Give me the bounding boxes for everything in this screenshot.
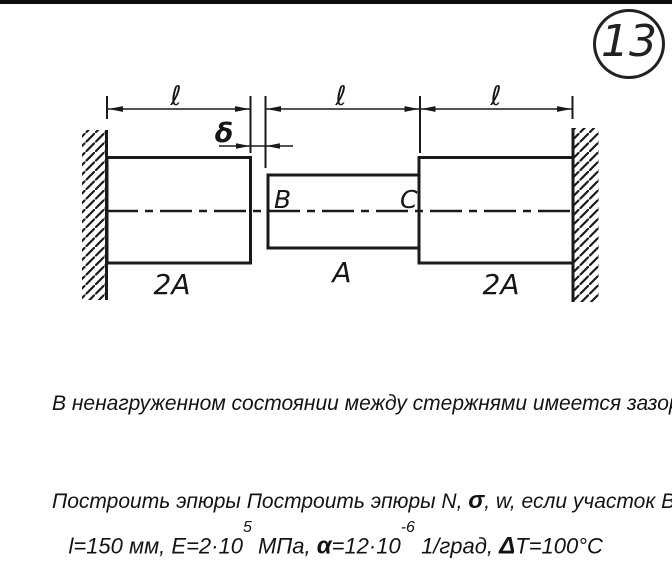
given-data-line: l=150 мм, E=2·105 МПа, α=12·10-6 1/град,… — [44, 506, 603, 575]
delta-symbol: Δ — [499, 532, 515, 559]
given-exponent-minus6: -6 — [401, 519, 415, 536]
area-label-right: 2A — [483, 268, 520, 301]
gap-label-delta: δ — [215, 118, 234, 149]
dim-label-l-middle: ℓ — [334, 81, 346, 112]
given-length-modulus: l=150 мм, E=2·10 — [68, 533, 243, 558]
line1-text: В ненагруженном состоянии между стержням… — [52, 392, 672, 415]
given-mpa: МПа, — [252, 533, 317, 558]
dim-label-l-right: ℓ — [489, 81, 501, 112]
point-label-b: B — [274, 185, 291, 214]
given-temperature: T=100°C — [515, 533, 603, 558]
given-per-grad: 1/град, — [415, 533, 499, 558]
given-exponent-5: 5 — [243, 519, 252, 536]
dim-lines — [108, 109, 572, 146]
dim-label-l-left: ℓ — [169, 81, 181, 112]
left-wall-hatch — [82, 130, 106, 300]
point-label-c: C — [400, 185, 418, 214]
problem-line-1: В ненагруженном состоянии между стержням… — [17, 354, 672, 453]
rod-diagram-svg: ℓ ℓ ℓ δ B C A 2A 2A — [0, 0, 672, 348]
area-label-middle: A — [330, 256, 351, 289]
area-label-left: 2A — [154, 268, 191, 301]
alpha-symbol: α — [317, 532, 332, 559]
dim-arrowheads — [109, 106, 572, 149]
given-alpha-value: =12·10 — [332, 533, 401, 558]
problem-sheet: 13 — [0, 0, 672, 575]
right-wall-hatch — [574, 128, 599, 302]
